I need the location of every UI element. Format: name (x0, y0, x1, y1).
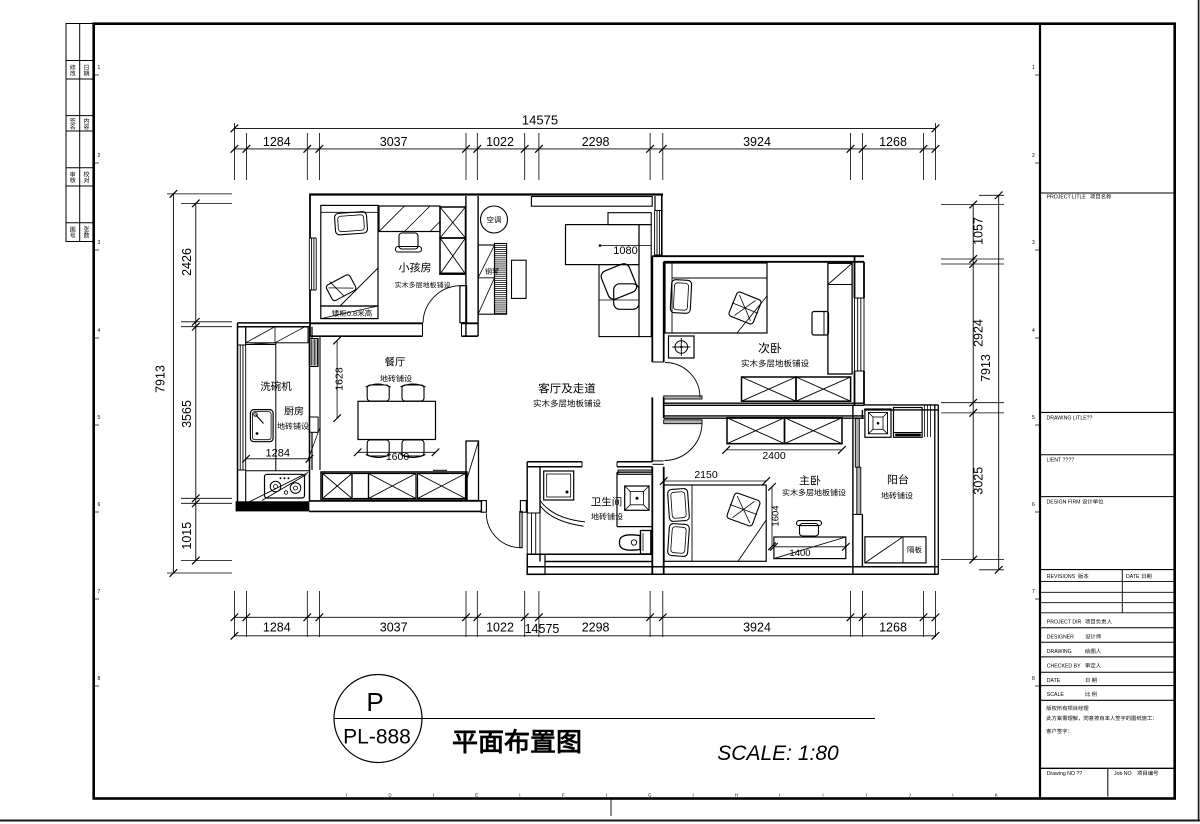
svg-text:14575: 14575 (522, 113, 558, 128)
svg-text:4: 4 (98, 328, 101, 334)
svg-text:I: I (433, 793, 434, 798)
svg-text:I: I (692, 793, 693, 798)
svg-text:洗碗机: 洗碗机 (260, 379, 292, 394)
svg-text:3565: 3565 (180, 400, 194, 428)
svg-text:地砖铺设: 地砖铺设 (380, 374, 412, 385)
svg-text:项目负责人: 项目负责人 (1085, 618, 1113, 626)
svg-text:I: I (346, 793, 347, 798)
svg-text:钢琴: 钢琴 (485, 267, 499, 277)
svg-text:E: E (475, 793, 478, 798)
svg-text:1057: 1057 (972, 217, 986, 245)
svg-text:1268: 1268 (879, 621, 907, 635)
svg-text:I: I (952, 793, 953, 798)
svg-text:F: F (562, 793, 565, 798)
svg-text:实木多层地板铺设: 实木多层地板铺设 (782, 488, 846, 499)
svg-text:Job NO: Job NO (1114, 771, 1132, 777)
svg-text:2426: 2426 (180, 248, 194, 276)
svg-text:对: 对 (83, 175, 89, 184)
svg-text:1400: 1400 (789, 548, 810, 559)
svg-text:LIENT ????: LIENT ???? (1047, 458, 1075, 464)
svg-text:地砖铺设: 地砖铺设 (591, 512, 623, 523)
svg-text:日期: 日期 (1141, 572, 1152, 580)
svg-text:PROJECT DIR: PROJECT DIR (1047, 619, 1082, 625)
svg-text:实木多层地板铺设: 实木多层地板铺设 (741, 358, 810, 370)
svg-text:2150: 2150 (694, 469, 718, 481)
svg-text:次卧: 次卧 (758, 340, 782, 357)
svg-text:7913: 7913 (154, 365, 168, 393)
svg-text:数: 数 (83, 231, 89, 240)
svg-text:DESIGNER: DESIGNER (1047, 634, 1074, 640)
svg-text:J: J (908, 793, 910, 798)
svg-text:SCALE: SCALE (1047, 692, 1065, 698)
svg-text:比 例: 比 例 (1085, 690, 1097, 698)
svg-text:Drawing NO ??: Drawing NO ?? (1047, 771, 1083, 777)
svg-text:版本: 版本 (1078, 572, 1089, 580)
svg-text:1628: 1628 (334, 367, 346, 391)
svg-text:1284: 1284 (263, 621, 291, 635)
svg-text:名: 名 (70, 122, 76, 131)
svg-text:CHECKED BY: CHECKED BY (1047, 663, 1081, 669)
svg-text:实木多层地板铺设: 实木多层地板铺设 (395, 281, 451, 291)
svg-text:DATE: DATE (1047, 678, 1061, 684)
svg-text:6: 6 (1032, 502, 1035, 508)
svg-text:DESIGN FIRM: DESIGN FIRM (1047, 499, 1081, 505)
svg-text:P: P (366, 687, 383, 717)
svg-text:3924: 3924 (743, 135, 771, 149)
svg-text:设计单位: 设计单位 (1082, 498, 1104, 506)
svg-text:主卧: 主卧 (799, 473, 821, 489)
svg-text:DATE: DATE (1126, 574, 1140, 580)
svg-text:平面布置图: 平面布置图 (452, 722, 582, 759)
svg-text:14575: 14575 (525, 622, 560, 636)
svg-text:2298: 2298 (582, 621, 610, 635)
svg-text:1: 1 (98, 65, 101, 71)
svg-text:I: I (519, 793, 520, 798)
svg-text:H: H (735, 793, 738, 798)
svg-text:I: I (606, 793, 607, 798)
svg-text:容: 容 (83, 122, 89, 131)
svg-text:PROJECT LITLE: PROJECT LITLE (1047, 194, 1087, 200)
svg-text:地砖铺设: 地砖铺设 (881, 491, 913, 502)
svg-text:1080: 1080 (613, 245, 637, 257)
svg-text:2: 2 (1032, 153, 1035, 159)
svg-text:4: 4 (1032, 328, 1035, 334)
svg-text:6: 6 (98, 502, 101, 508)
svg-text:阳台: 阳台 (887, 472, 909, 488)
svg-text:1600: 1600 (386, 451, 410, 463)
svg-text:1022: 1022 (486, 135, 514, 149)
svg-text:1268: 1268 (879, 135, 907, 149)
svg-text:小孩房: 小孩房 (399, 260, 432, 276)
svg-text:3025: 3025 (972, 467, 986, 495)
svg-text:3037: 3037 (380, 621, 408, 635)
svg-text:8: 8 (98, 676, 101, 682)
svg-text:SCALE: 1:80: SCALE: 1:80 (717, 742, 839, 765)
svg-text:矮柜0.8米高: 矮柜0.8米高 (332, 308, 373, 319)
svg-text:REVISIONS: REVISIONS (1047, 574, 1076, 580)
svg-text:版权所有项目经理: 版权所有项目经理 (1046, 704, 1089, 712)
svg-text:1015: 1015 (180, 522, 194, 550)
svg-text:3037: 3037 (380, 135, 408, 149)
svg-text:PL-888: PL-888 (343, 726, 411, 749)
svg-text:隔板: 隔板 (907, 545, 922, 556)
svg-text:实木多层地板铺设: 实木多层地板铺设 (533, 398, 602, 410)
svg-text:餐厅: 餐厅 (385, 355, 406, 370)
svg-text:5: 5 (98, 415, 101, 421)
svg-text:DRAWING LITLE??: DRAWING LITLE?? (1047, 415, 1093, 421)
svg-text:7: 7 (1032, 589, 1035, 595)
svg-text:卫生间: 卫生间 (591, 495, 623, 510)
svg-text:3924: 3924 (743, 621, 771, 635)
svg-text:号: 号 (70, 231, 76, 240)
svg-text:厨房: 厨房 (284, 403, 304, 418)
svg-text:项目名称: 项目名称 (1090, 193, 1112, 201)
svg-text:I: I (822, 793, 823, 798)
svg-text:地砖铺设: 地砖铺设 (277, 421, 309, 432)
svg-text:1284: 1284 (266, 448, 290, 460)
svg-text:客厅及走道: 客厅及走道 (538, 381, 596, 397)
svg-text:2298: 2298 (582, 135, 610, 149)
svg-text:此方案需理解，同意按自本人签字的图纸施工：: 此方案需理解，同意按自本人签字的图纸施工： (1046, 714, 1157, 722)
svg-text:1284: 1284 (263, 135, 291, 149)
svg-text:I: I (866, 793, 867, 798)
svg-text:项目编号: 项目编号 (1137, 769, 1159, 777)
svg-text:审定人: 审定人 (1085, 662, 1102, 670)
svg-text:1022: 1022 (486, 621, 514, 635)
svg-text:7: 7 (98, 589, 101, 595)
svg-text:7913: 7913 (979, 354, 993, 382)
svg-text:I: I (779, 793, 780, 798)
svg-text:核: 核 (70, 175, 76, 184)
svg-text:1: 1 (1032, 65, 1035, 71)
svg-text:DRAWING: DRAWING (1047, 649, 1072, 655)
svg-text:2400: 2400 (762, 450, 786, 462)
svg-text:5: 5 (1032, 415, 1035, 421)
svg-text:改: 改 (70, 68, 76, 77)
svg-text:期: 期 (83, 68, 89, 77)
svg-text:1604: 1604 (771, 505, 782, 526)
svg-text:日 期: 日 期 (1085, 676, 1097, 684)
svg-text:绘图人: 绘图人 (1085, 647, 1102, 655)
svg-text:空调: 空调 (487, 215, 502, 226)
svg-text:设计师: 设计师 (1085, 633, 1102, 641)
svg-text:3: 3 (98, 240, 101, 246)
svg-text:K: K (995, 793, 998, 798)
svg-text:2924: 2924 (972, 319, 986, 347)
svg-text:客户签字：: 客户签字： (1046, 727, 1073, 735)
svg-text:3: 3 (1032, 240, 1035, 246)
svg-text:G: G (648, 793, 652, 798)
svg-text:8: 8 (1032, 676, 1035, 682)
svg-text:2: 2 (98, 153, 101, 159)
